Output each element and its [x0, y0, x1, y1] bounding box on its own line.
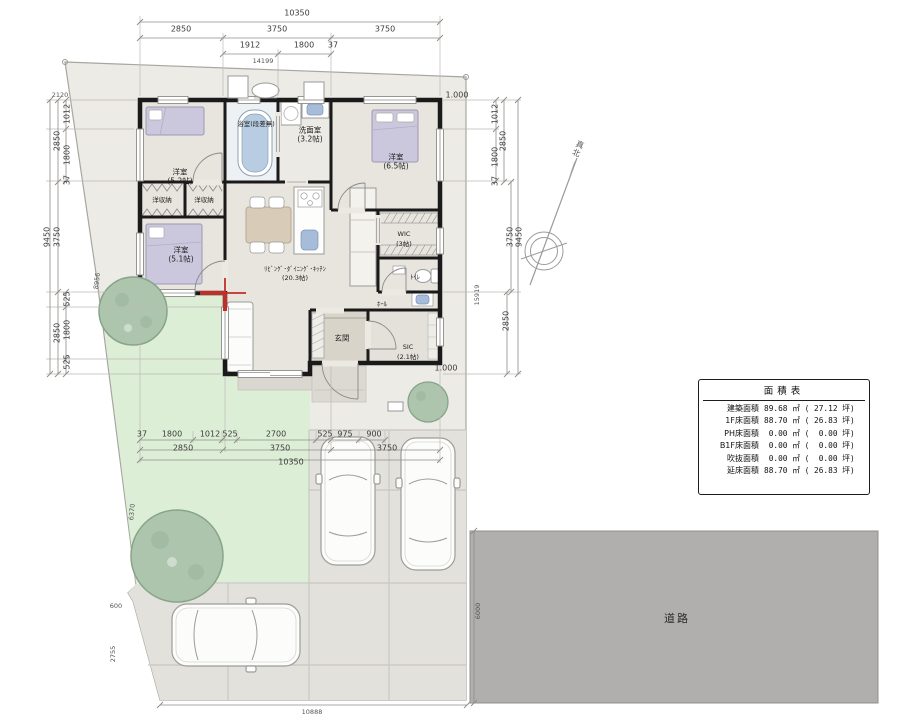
- hall-washbasin-icon: [412, 293, 433, 306]
- plan-drawing: [0, 0, 900, 726]
- area-row-label: 延床面積: [699, 465, 759, 477]
- site-floor-plan: 1035028503750375019121800371419921201012…: [0, 0, 900, 726]
- tree-icon: [99, 277, 167, 345]
- car-icon: [396, 438, 460, 570]
- ac-unit-icon: [388, 402, 403, 411]
- area-table-row: 延床面積 88.70 ㎡ ( 26.83 坪): [699, 465, 869, 477]
- area-table-row: 吹抜面積 0.00 ㎡ ( 0.00 坪): [699, 453, 869, 465]
- area-row-value: 0.00 ㎡ ( 0.00 坪): [759, 440, 869, 452]
- bed-icon: [146, 107, 204, 135]
- bed-icon: [146, 224, 202, 284]
- area-row-value: 89.68 ㎡ ( 27.12 坪): [759, 403, 869, 415]
- tree-icon: [408, 382, 448, 422]
- car-icon: [172, 598, 300, 672]
- area-row-value: 0.00 ㎡ ( 0.00 坪): [759, 428, 869, 440]
- sofa-icon: [227, 302, 253, 372]
- outdoor-unit-icon: [304, 82, 324, 100]
- area-table-divider: [703, 400, 865, 401]
- cupboard-icon: [350, 188, 376, 286]
- area-table-row: 1F床面積 88.70 ㎡ ( 26.83 坪): [699, 415, 869, 427]
- bed-icon: [372, 110, 418, 162]
- area-row-label: 建築面積: [699, 403, 759, 415]
- area-row-value: 88.70 ㎡ ( 26.83 坪): [759, 465, 869, 477]
- area-table-row: PH床面積 0.00 ㎡ ( 0.00 坪): [699, 428, 869, 440]
- area-row-label: B1F床面積: [699, 440, 759, 452]
- area-row-value: 88.70 ㎡ ( 26.83 坪): [759, 415, 869, 427]
- area-table-row: B1F床面積 0.00 ㎡ ( 0.00 坪): [699, 440, 869, 452]
- car-icon: [316, 437, 380, 565]
- area-row-label: 吹抜面積: [699, 453, 759, 465]
- road-surface: [470, 531, 878, 703]
- tree-icon: [131, 510, 223, 602]
- area-table-row: 建築面積 89.68 ㎡ ( 27.12 坪): [699, 403, 869, 415]
- water-heater-icon: [228, 76, 248, 98]
- bathtub-icon: [238, 110, 272, 176]
- washing-machine-icon: [281, 102, 301, 125]
- area-table: 面積表 建築面積 89.68 ㎡ ( 27.12 坪) 1F床面積 88.70 …: [698, 379, 870, 495]
- heatpump-unit-icon: [252, 83, 279, 98]
- north-arrow-icon: [521, 158, 577, 285]
- area-row-label: 1F床面積: [699, 415, 759, 427]
- area-row-label: PH床面積: [699, 428, 759, 440]
- area-table-title: 面積表: [699, 380, 869, 397]
- area-row-value: 0.00 ㎡ ( 0.00 坪): [759, 453, 869, 465]
- kitchen-counter-icon: [294, 187, 324, 254]
